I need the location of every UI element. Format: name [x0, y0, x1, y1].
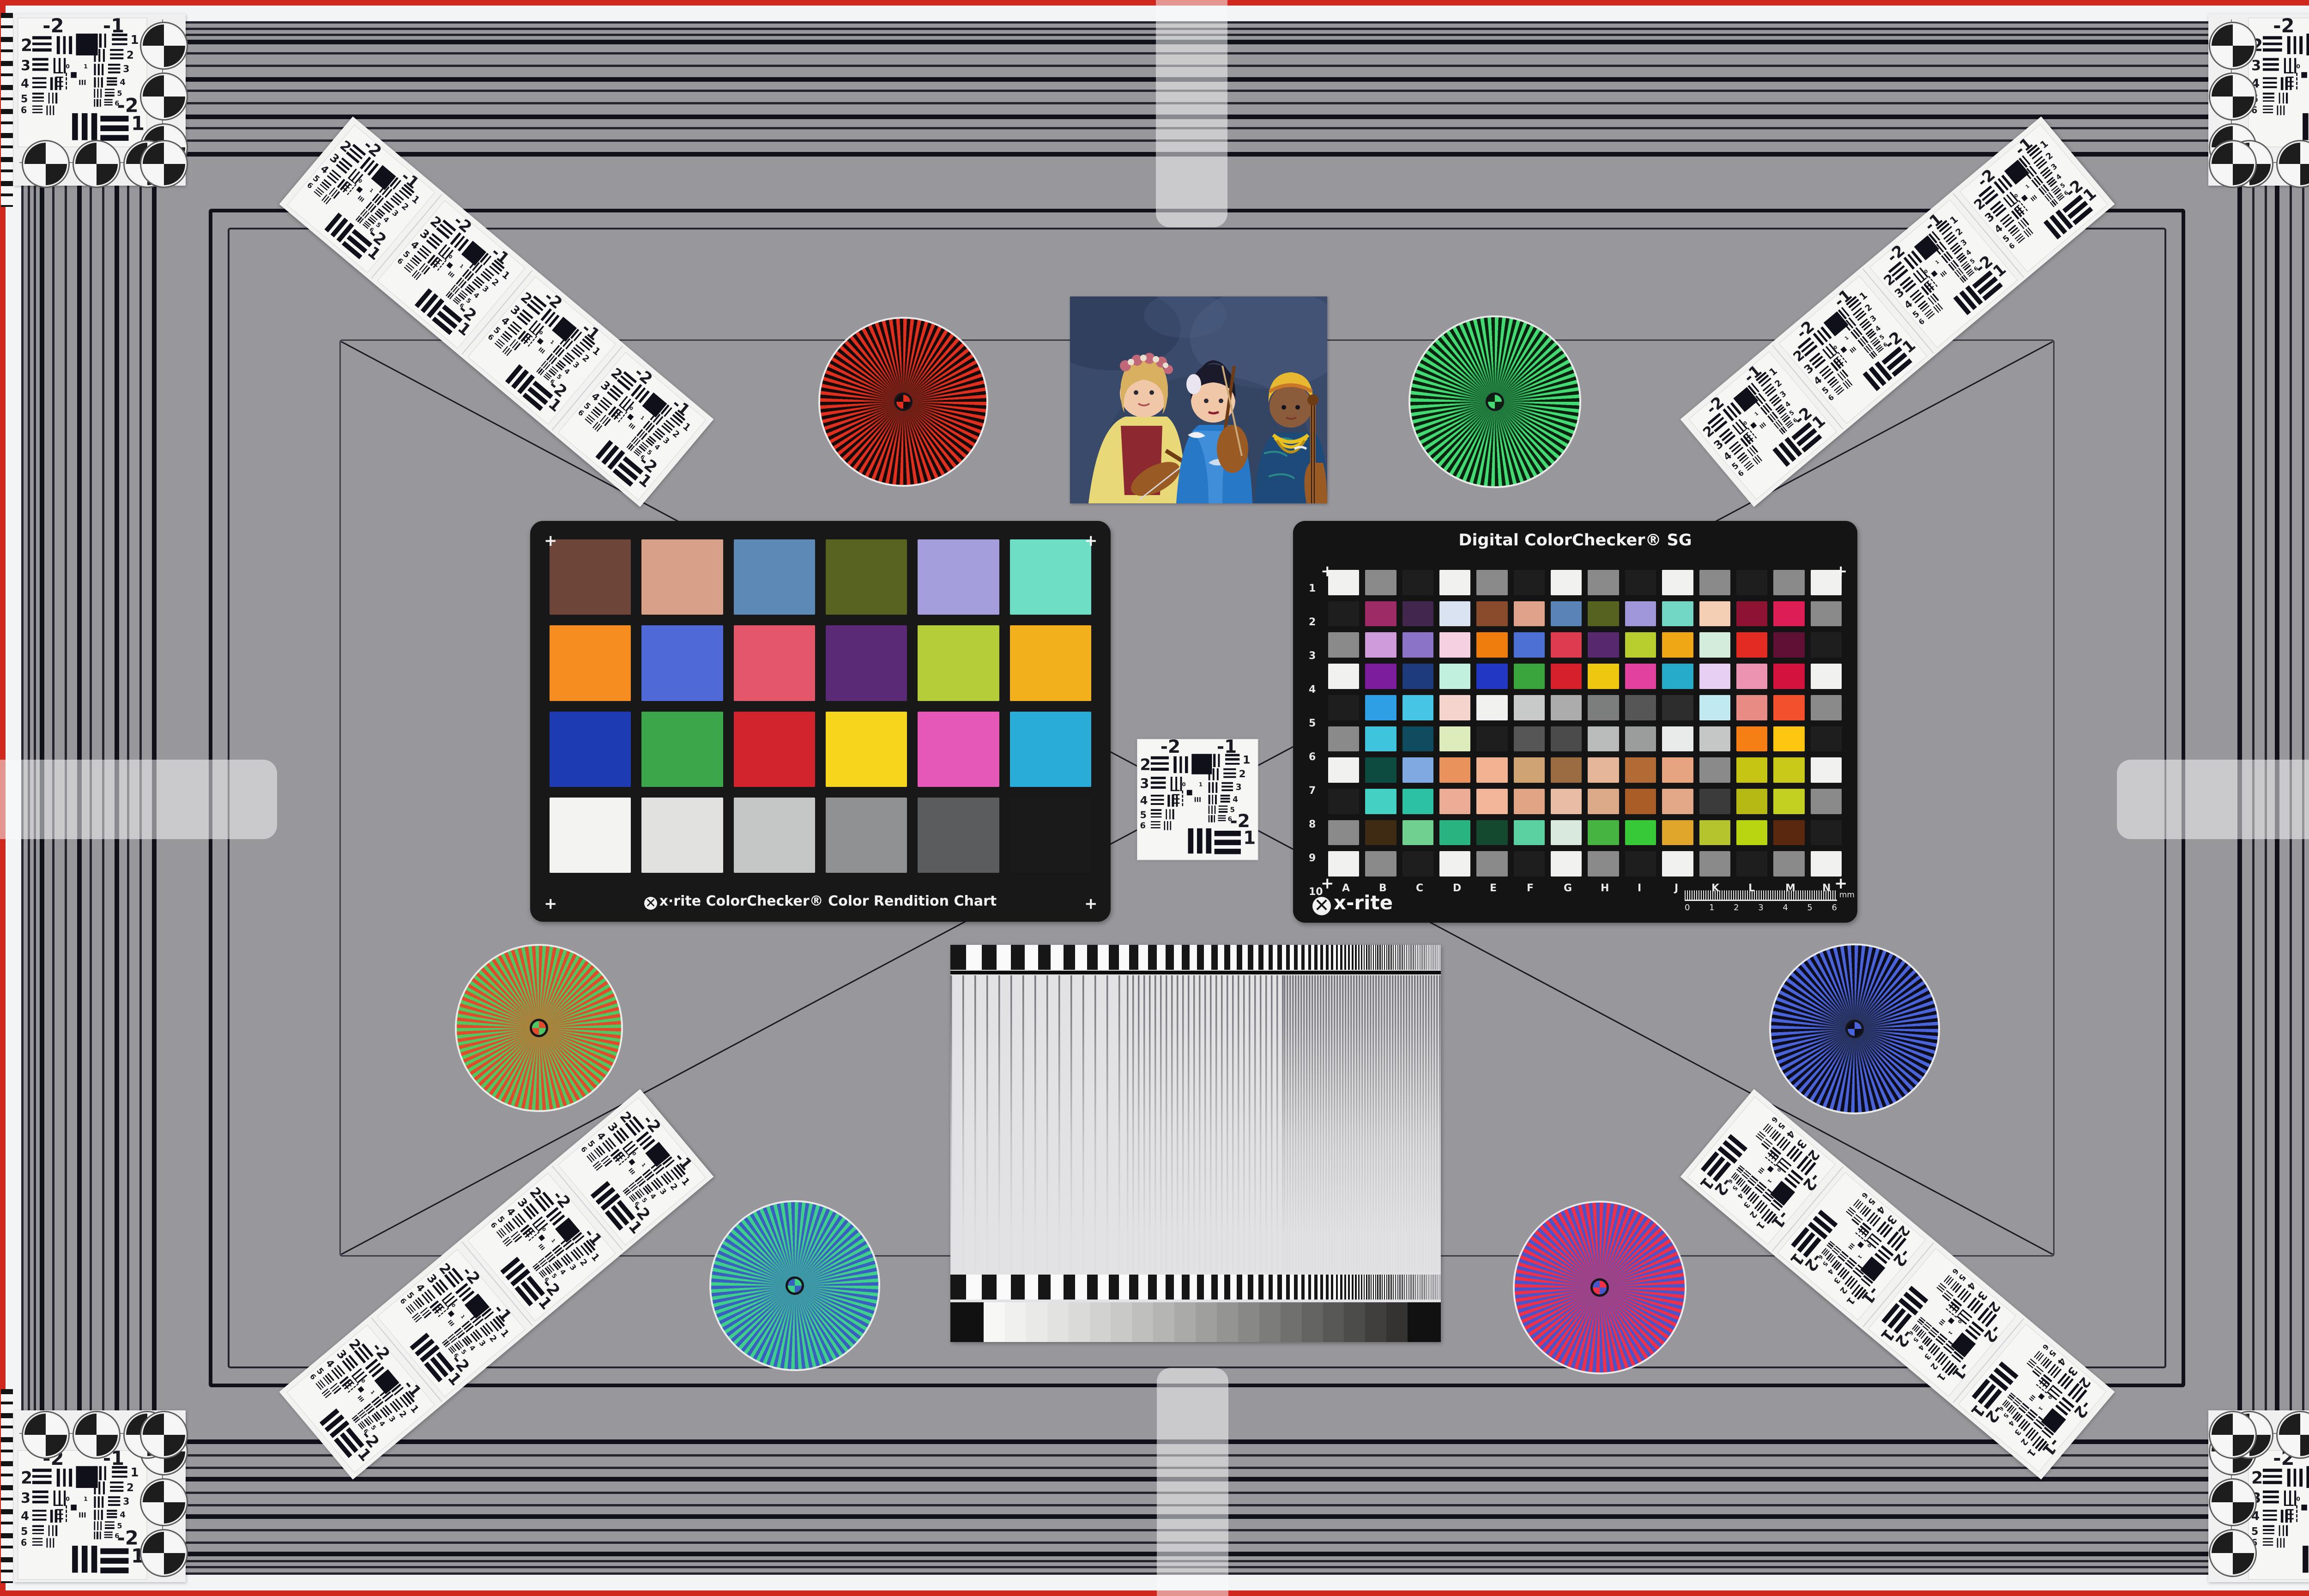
resolution-bar: [2263, 58, 2279, 60]
resolution-bar: [47, 1538, 48, 1548]
registration-mark: [2210, 1530, 2255, 1576]
resolution-bar: [112, 1471, 127, 1473]
resolution-number: 0: [2296, 1497, 2300, 1503]
corner-target-card: -2-123456123456-2101: [2208, 1410, 2309, 1582]
mid-bar-left: [0, 760, 277, 839]
resolution-bar: [79, 1512, 80, 1517]
resolution-bar: [1864, 1239, 1866, 1242]
resolution-number: 1: [635, 472, 654, 490]
resolution-bar: [104, 34, 106, 48]
resolution-number: 6: [576, 409, 585, 418]
resolution-number: 1: [640, 1163, 646, 1168]
resolution-bar: [66, 82, 66, 85]
resolution-bar: [2281, 77, 2283, 90]
resolution-bar: [2263, 1514, 2277, 1516]
resolution-bar: [1170, 821, 1172, 830]
resolution-bar: [351, 1388, 353, 1390]
resolution-bar: [356, 1384, 358, 1386]
resolution-number: 4: [1233, 796, 1238, 804]
resolution-number: 1: [368, 188, 374, 193]
resolution-bar: [1151, 786, 1166, 789]
resolution-bar: [351, 187, 354, 189]
resolution-number: 4: [1140, 796, 1148, 807]
resolution-bar: [1197, 797, 1198, 802]
resolution-bar: [1771, 1161, 1773, 1163]
resolution-number: 3: [1922, 1352, 1932, 1360]
resolution-bar: [1206, 828, 1211, 854]
resolution-number: 1: [545, 396, 564, 415]
resolution-bar: [2263, 112, 2273, 113]
resolution-bar: [105, 1524, 115, 1526]
resolution-bar: [108, 67, 120, 69]
resolution-number: 1: [2025, 1447, 2037, 1458]
resolution-bar: [1151, 781, 1166, 784]
resolution-bar: [2263, 105, 2273, 107]
resolution-bar: [444, 1310, 446, 1312]
resolution-bar: [66, 1514, 66, 1517]
resolution-bar: [1151, 795, 1164, 797]
resolution-bar: [2284, 58, 2286, 73]
resolution-target-wrap: -2-123456123456-2101: [18, 18, 146, 146]
resolution-number: 3: [1779, 390, 1788, 399]
resolution-bar: [97, 89, 98, 97]
resolution-bar: [1223, 772, 1236, 774]
resolution-bar: [32, 77, 46, 79]
resolution-bar: [55, 72, 63, 73]
resolution-bar: [2277, 105, 2279, 115]
resolution-bar: [2286, 1509, 2294, 1511]
resolution-bar: [1750, 430, 1752, 433]
resolution-bar: [1223, 768, 1236, 770]
resolution-number: 2: [580, 353, 591, 363]
resolution-bar: [1216, 782, 1218, 793]
resolution-bar: [55, 85, 63, 87]
resolution-bar: [1209, 782, 1210, 793]
resolution-bar: [2039, 1386, 2041, 1389]
resolution-bar: [1195, 797, 1196, 802]
corner-target-card: -2-123456123456-2101: [14, 1410, 186, 1582]
resolution-bar: [105, 1527, 115, 1529]
resolution-number: 1: [455, 320, 473, 339]
resolution-bar: [104, 1532, 113, 1533]
center-resolution-target: -2-123456123456-2101: [1137, 739, 1257, 859]
resolution-bar: [1179, 756, 1182, 773]
resolution-target-wrap: -2-123456123456-2101: [2248, 18, 2309, 146]
resolution-bar: [1220, 798, 1230, 799]
resolution-number: 2: [1864, 303, 1874, 313]
resolution-bar: [71, 72, 77, 78]
resolution-bar: [1151, 813, 1162, 815]
resolution-bar: [2284, 1538, 2285, 1548]
resolution-bar: [53, 58, 55, 73]
resolution-bar: [2299, 36, 2302, 54]
resolution-number: 2: [428, 214, 444, 231]
resolution-bar: [1217, 768, 1219, 780]
resolution-bar: [53, 105, 54, 115]
resolution-bar: [2263, 77, 2277, 79]
resolution-number: 4: [1965, 1280, 1977, 1291]
resolution-bar: [1767, 1166, 1773, 1172]
resolution-bar: [1209, 795, 1210, 804]
resolution-bar: [32, 112, 42, 113]
resolution-bar: [2280, 105, 2282, 115]
resolution-bar: [1215, 840, 1241, 845]
resolution-bar: [97, 77, 99, 87]
resolution-bar: [94, 99, 95, 107]
resolution-bar: [2263, 1544, 2273, 1546]
resolution-number: 1: [639, 416, 645, 421]
resolution-bar: [110, 49, 124, 51]
registration-mark: [2210, 23, 2255, 68]
resolution-bar: [349, 189, 351, 192]
resolution-bar: [1213, 754, 1215, 768]
resolution-bar: [2263, 1475, 2282, 1478]
resolution-number: 2: [1838, 1285, 1848, 1295]
resolution-bar: [1218, 818, 1226, 819]
resolution-number: 2: [671, 429, 681, 440]
resolution-bar: [447, 262, 453, 269]
resolution-number: 6: [1950, 1267, 1959, 1275]
resolution-bar: [2263, 93, 2274, 95]
resolution-bar: [1214, 815, 1215, 822]
resolution-bar: [2289, 1491, 2291, 1506]
resolution-bar: [107, 77, 117, 79]
resolution-bar: [32, 1475, 52, 1478]
resolution-bar: [107, 84, 117, 86]
resolution-number: 5: [1957, 1273, 1967, 1282]
corner-target-card: -2-123456123456-2101: [2208, 14, 2309, 186]
resolution-bar: [1218, 815, 1226, 816]
siemens-star-greenblue: [709, 1200, 880, 1371]
resolution-number: 1: [1199, 783, 1203, 788]
resolution-number: -2: [42, 17, 64, 36]
resolution-number: 1: [408, 1404, 420, 1415]
resolution-number: 4: [653, 443, 661, 452]
resolution-bar: [110, 1481, 124, 1484]
resolution-bar: [1212, 782, 1214, 793]
resolution-bar: [2296, 86, 2297, 90]
resolution-bar: [537, 1232, 539, 1234]
resolution-number: 4: [562, 368, 570, 376]
resolution-bar: [1935, 284, 1937, 287]
resolution-bar: [94, 1532, 95, 1540]
resolution-bar: [353, 1386, 356, 1388]
resolution-bar: [32, 100, 44, 102]
resolution-bar: [2296, 1519, 2297, 1522]
resolution-bar: [2289, 58, 2291, 73]
resolution-bar: [32, 109, 42, 110]
resolution-bar: [356, 186, 363, 193]
resolution-bar: [528, 344, 530, 346]
resolution-number: 4: [1994, 224, 2005, 236]
resolution-number: 2: [2019, 1437, 2029, 1447]
resolution-number: 3: [658, 1187, 667, 1196]
resolution-bar: [55, 77, 63, 78]
resolution-target-wrap: -2-123456123456-2101: [2248, 1450, 2309, 1578]
resolution-bar: [1168, 795, 1170, 807]
resolution-target: -2-123456123456-2101: [2248, 18, 2309, 147]
resolution-number: 1: [2037, 1405, 2043, 1411]
star-center-dot: [1486, 393, 1504, 411]
registration-mark: [74, 1412, 119, 1457]
resolution-bar: [94, 1521, 95, 1530]
resolution-bar: [94, 77, 96, 87]
resolution-bar: [1221, 789, 1233, 791]
resolution-number: 2: [1895, 1223, 1912, 1239]
resolution-number: 2: [21, 1470, 32, 1487]
resolution-number: 1: [681, 422, 692, 433]
resolution-bar: [1928, 276, 1930, 278]
registration-mark: [2210, 1412, 2255, 1457]
resolution-number: 4: [1874, 325, 1882, 333]
resolution-number: 3: [481, 285, 490, 294]
resolution-number: 3: [2251, 59, 2261, 73]
resolution-bar: [2286, 93, 2288, 104]
resolution-number: -2: [1161, 738, 1180, 756]
resolution-bar: [2282, 93, 2284, 104]
resolution-bar: [624, 1158, 627, 1161]
resolution-bar: [2296, 1505, 2297, 1509]
resolution-number: 3: [1832, 1276, 1841, 1285]
resolution-number: 2: [1928, 1361, 1939, 1371]
resolution-bar: [98, 49, 101, 61]
resolution-bar: [52, 1525, 54, 1536]
resolution-number: 2: [1773, 379, 1783, 389]
resolution-bar: [1840, 355, 1842, 357]
resolution-number: 1: [1754, 1219, 1765, 1230]
resolution-bar: [55, 81, 63, 83]
resolution-number: 2: [21, 37, 32, 54]
edge-ruler: [1, 13, 13, 207]
resolution-number: 1: [1768, 367, 1779, 378]
resolution-bar: [1182, 795, 1183, 798]
resolution-bar: [112, 38, 127, 41]
resolution-bar: [32, 1533, 44, 1535]
resolution-number: -2: [451, 213, 474, 236]
resolution-bar: [2285, 77, 2287, 90]
resolution-number: 3: [390, 209, 399, 218]
resolution-bar: [32, 1501, 48, 1503]
resolution-bar: [85, 80, 86, 85]
resolution-bar: [79, 80, 80, 85]
resolution-bar: [1151, 809, 1162, 811]
resolution-number: 1: [1935, 1371, 1946, 1382]
resolution-number: 5: [405, 1291, 416, 1300]
resolution-number: 2: [400, 202, 410, 212]
resolution-bar: [2263, 1491, 2279, 1493]
resolution-number: 6: [1737, 470, 1746, 478]
resolution-bar: [100, 126, 128, 131]
registration-mark: [141, 74, 187, 119]
resolution-number: 4: [318, 164, 330, 176]
resolution-bar: [100, 1532, 101, 1540]
resolution-bar: [47, 105, 48, 115]
resolution-number: -2: [2071, 1397, 2094, 1421]
resolution-bar: [348, 1390, 350, 1393]
resolution-number: -2: [1980, 1322, 2003, 1345]
resolution-number: 5: [2251, 1526, 2258, 1536]
resolution-bar: [101, 77, 103, 87]
resolution-bar: [98, 1496, 100, 1507]
resolution-bar: [2296, 73, 2297, 76]
resolution-bar: [1215, 805, 1216, 814]
resolution-bar: [2286, 1514, 2294, 1515]
resolution-number: 2: [127, 50, 134, 61]
resolution-bar: [1221, 782, 1233, 784]
siemens-star-redblue: [1513, 1201, 1686, 1374]
resolution-number: 0: [1182, 783, 1186, 788]
resolution-number: -2: [631, 365, 655, 388]
resolution-number: -2: [550, 1188, 573, 1212]
resolution-bar: [112, 1466, 127, 1469]
resolution-bar: [620, 417, 623, 419]
resolution-bar: [2285, 1510, 2287, 1523]
resolution-bar: [100, 99, 101, 107]
resolution-bar: [55, 93, 57, 104]
resolution-number: 1: [1949, 215, 1960, 226]
resolution-bar: [108, 64, 120, 66]
resolution-bar: [535, 336, 537, 338]
resolution-bar: [1151, 803, 1164, 805]
resolution-bar: [94, 34, 96, 48]
siemens-star-green: [1408, 315, 1581, 488]
resolution-number: 2: [518, 290, 534, 307]
resolution-number: 1: [549, 340, 555, 345]
resolution-bar: [94, 1481, 96, 1494]
resolution-bar: [105, 1521, 115, 1523]
resolution-bar: [48, 93, 50, 104]
resolution-bar: [2036, 1384, 2038, 1386]
resolution-bar: [1225, 758, 1239, 761]
resolution-number: 4: [1826, 1267, 1835, 1275]
resolution-number: 1: [1947, 1330, 1952, 1335]
resolution-bar: [1151, 762, 1169, 765]
resolution-bar: [2263, 1541, 2273, 1542]
resolution-bar: [2293, 1469, 2296, 1487]
resolution-bar: [1221, 786, 1233, 787]
resolution-number: 1: [459, 264, 464, 270]
resolution-bar: [1151, 816, 1162, 818]
resolution-bar: [1209, 805, 1210, 814]
resolution-bar: [1188, 828, 1193, 854]
resolution-bar: [94, 64, 96, 75]
resolution-number: 6: [305, 181, 314, 190]
resolution-bar: [618, 420, 620, 422]
resolution-number: 1: [131, 1468, 139, 1480]
resolution-bar: [66, 1505, 66, 1509]
resolution-number: 2: [578, 1258, 588, 1268]
resolution-bar: [2296, 1514, 2297, 1517]
resolution-number: 6: [308, 1373, 317, 1381]
resolution-bar: [105, 92, 115, 93]
resolution-bar: [104, 104, 113, 106]
resolution-bar: [1199, 797, 1201, 802]
resolution-bar: [82, 80, 83, 85]
resolution-bar: [1930, 279, 1933, 281]
resolution-bar: [2263, 82, 2277, 84]
resolution-bar: [1176, 795, 1178, 807]
resolution-bar: [447, 1307, 449, 1310]
resolution-bar: [1218, 820, 1226, 822]
resolution-bar: [53, 1538, 54, 1548]
resolution-bar: [2299, 1469, 2302, 1487]
resolution-number: 4: [120, 1511, 126, 1519]
resolution-bar: [108, 71, 120, 73]
resolution-number: 6: [1860, 1191, 1868, 1199]
resolution-bar: [1857, 1242, 1864, 1248]
resolution-number: 1: [84, 64, 88, 70]
siemens-star-red: [818, 317, 988, 487]
resolution-bar: [354, 184, 356, 186]
resolution-bar: [1167, 821, 1168, 830]
resolution-bar: [2286, 81, 2294, 83]
resolution-bar: [1182, 791, 1183, 794]
resolution-bar: [1173, 756, 1176, 773]
resolution-bar: [97, 1532, 98, 1540]
resolution-bar: [110, 1490, 124, 1492]
resolution-bar: [1185, 756, 1188, 773]
registration-mark: [2278, 141, 2309, 187]
resolution-bar: [1845, 360, 1847, 363]
resolution-bar: [1151, 756, 1169, 759]
resolution-bar: [1931, 271, 1937, 277]
resolution-number: 3: [1236, 783, 1242, 792]
resolution-bar: [1750, 422, 1757, 429]
resolution-number: 1: [131, 115, 145, 134]
resolution-number: 1: [1844, 1295, 1856, 1306]
resolution-bar: [94, 1466, 96, 1481]
resolution-bar: [347, 193, 349, 195]
resolution-number: 1: [369, 1390, 375, 1396]
resolution-bar: [60, 77, 61, 90]
resolution-number: 4: [1813, 375, 1824, 387]
resolution-bar: [32, 86, 46, 88]
resolution-number: 4: [1916, 1343, 1925, 1351]
registration-mark: [141, 1480, 187, 1525]
resolution-bar: [2301, 1505, 2307, 1511]
resolution-number: -2: [1890, 1246, 1913, 1270]
star-center-dot: [1845, 1020, 1864, 1038]
resolution-number: 0: [66, 64, 70, 70]
resolution-bar: [110, 1486, 124, 1488]
resolution-bar: [32, 48, 52, 51]
resolution-number: -2: [1800, 1170, 1823, 1193]
resolution-number: 1: [679, 1176, 691, 1187]
resolution-bar: [1842, 357, 1844, 360]
resolution-number: 4: [1736, 1191, 1744, 1199]
resolution-bar: [1209, 815, 1210, 822]
resolution-bar: [2263, 1481, 2282, 1484]
resolution-bar: [2282, 1525, 2284, 1536]
resolution-bar: [2306, 34, 2309, 55]
resolution-bar: [2293, 36, 2296, 54]
resolution-bar: [2284, 105, 2285, 115]
resolution-bar: [82, 113, 87, 140]
resolution-bar: [627, 414, 634, 420]
resolution-bar: [2287, 36, 2290, 54]
resolution-bar: [32, 1525, 44, 1527]
resolution-bar: [2286, 72, 2294, 73]
resolution-bar: [1768, 1159, 1770, 1161]
resolution-number: 2: [337, 139, 353, 155]
resolution-number: 1: [1968, 1402, 1987, 1420]
resolution-number: 4: [409, 240, 420, 252]
resolution-bar: [94, 49, 96, 61]
resolution-bar: [1954, 1315, 1957, 1318]
resolution-bar: [103, 49, 105, 61]
resolution-number: 1: [1697, 1174, 1716, 1192]
resolution-bar: [2263, 1529, 2274, 1531]
